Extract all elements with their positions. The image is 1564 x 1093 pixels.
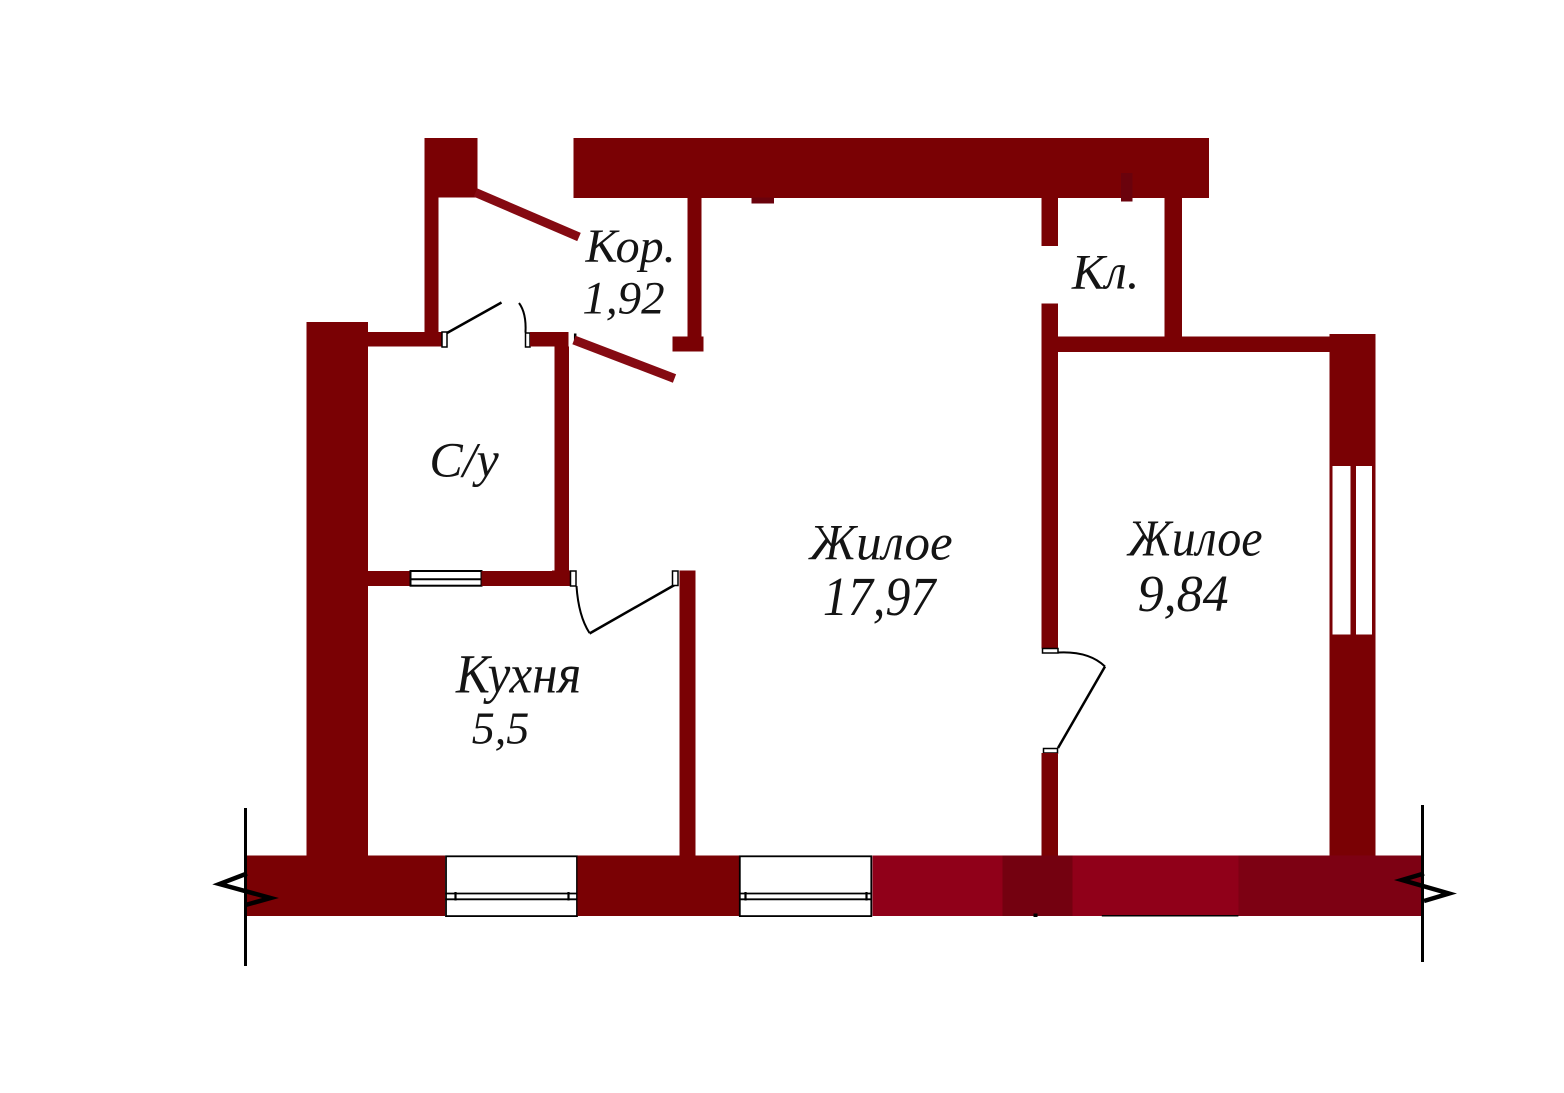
svg-text:Кор.: Кор. (585, 220, 676, 273)
svg-text:Жилое: Жилое (1126, 509, 1263, 567)
svg-text:Жилое: Жилое (807, 516, 952, 572)
svg-text:5,5: 5,5 (472, 703, 530, 754)
svg-text:Кл.: Кл. (1071, 243, 1140, 299)
svg-text:С/у: С/у (429, 431, 499, 487)
svg-text:1,92: 1,92 (582, 273, 664, 325)
svg-text:9,84: 9,84 (1138, 566, 1229, 623)
svg-text:Кухня: Кухня (455, 645, 581, 705)
svg-text:17,97: 17,97 (823, 567, 938, 628)
